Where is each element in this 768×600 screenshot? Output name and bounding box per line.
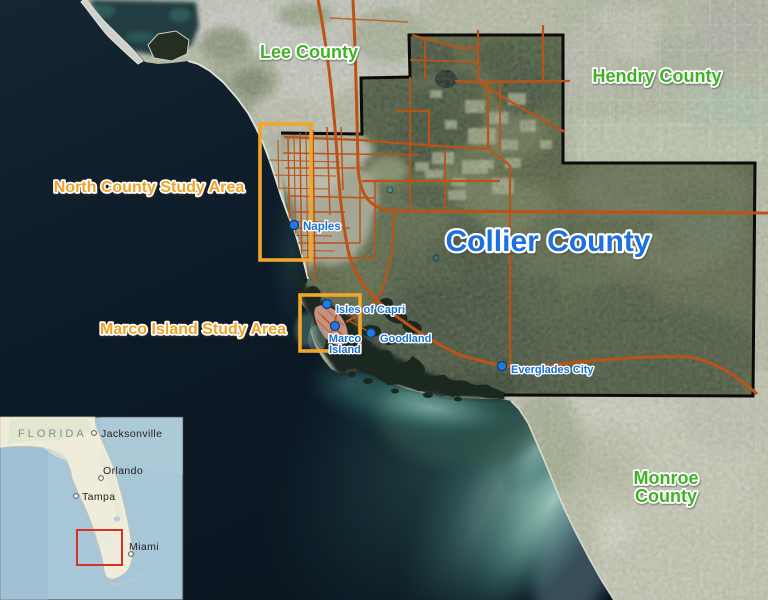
svg-text:Naples: Naples — [303, 221, 341, 233]
svg-text:Miami: Miami — [129, 541, 159, 553]
svg-text:FLORIDA: FLORIDA — [18, 428, 87, 440]
svg-text:Hendry County: Hendry County — [592, 66, 721, 86]
svg-text:Collier County: Collier County — [445, 225, 650, 258]
svg-text:Orlando: Orlando — [103, 465, 143, 477]
svg-text:Tampa: Tampa — [82, 491, 116, 503]
svg-text:Monroe: Monroe — [634, 468, 699, 488]
svg-text:Island: Island — [329, 344, 361, 356]
svg-text:County: County — [635, 486, 697, 506]
svg-text:Jacksonville: Jacksonville — [101, 428, 162, 440]
svg-text:North County Study Area: North County Study Area — [54, 179, 245, 196]
svg-text:Everglades City: Everglades City — [511, 364, 594, 376]
svg-text:Lee County: Lee County — [260, 42, 358, 62]
svg-text:Isles of Capri: Isles of Capri — [336, 304, 405, 316]
svg-text:Marco Island Study Area: Marco Island Study Area — [100, 321, 286, 338]
svg-text:Goodland: Goodland — [380, 333, 431, 345]
